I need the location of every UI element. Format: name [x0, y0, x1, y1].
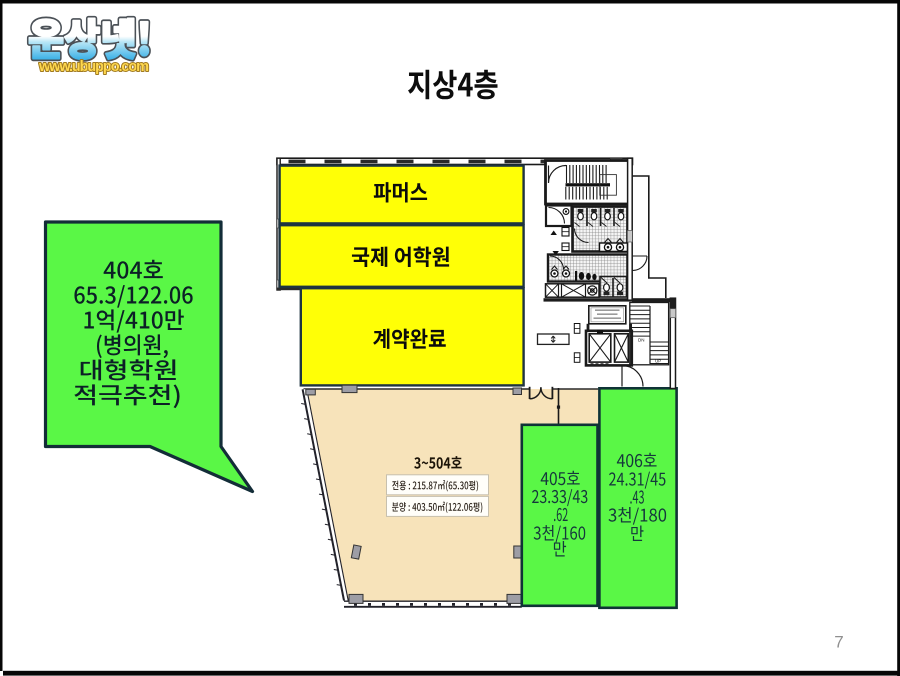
svg-text:DN: DN [638, 338, 645, 343]
svg-text:www.ubuppo.com: www.ubuppo.com [38, 59, 149, 75]
svg-text:7: 7 [834, 633, 843, 652]
svg-text:UP: UP [655, 359, 661, 364]
